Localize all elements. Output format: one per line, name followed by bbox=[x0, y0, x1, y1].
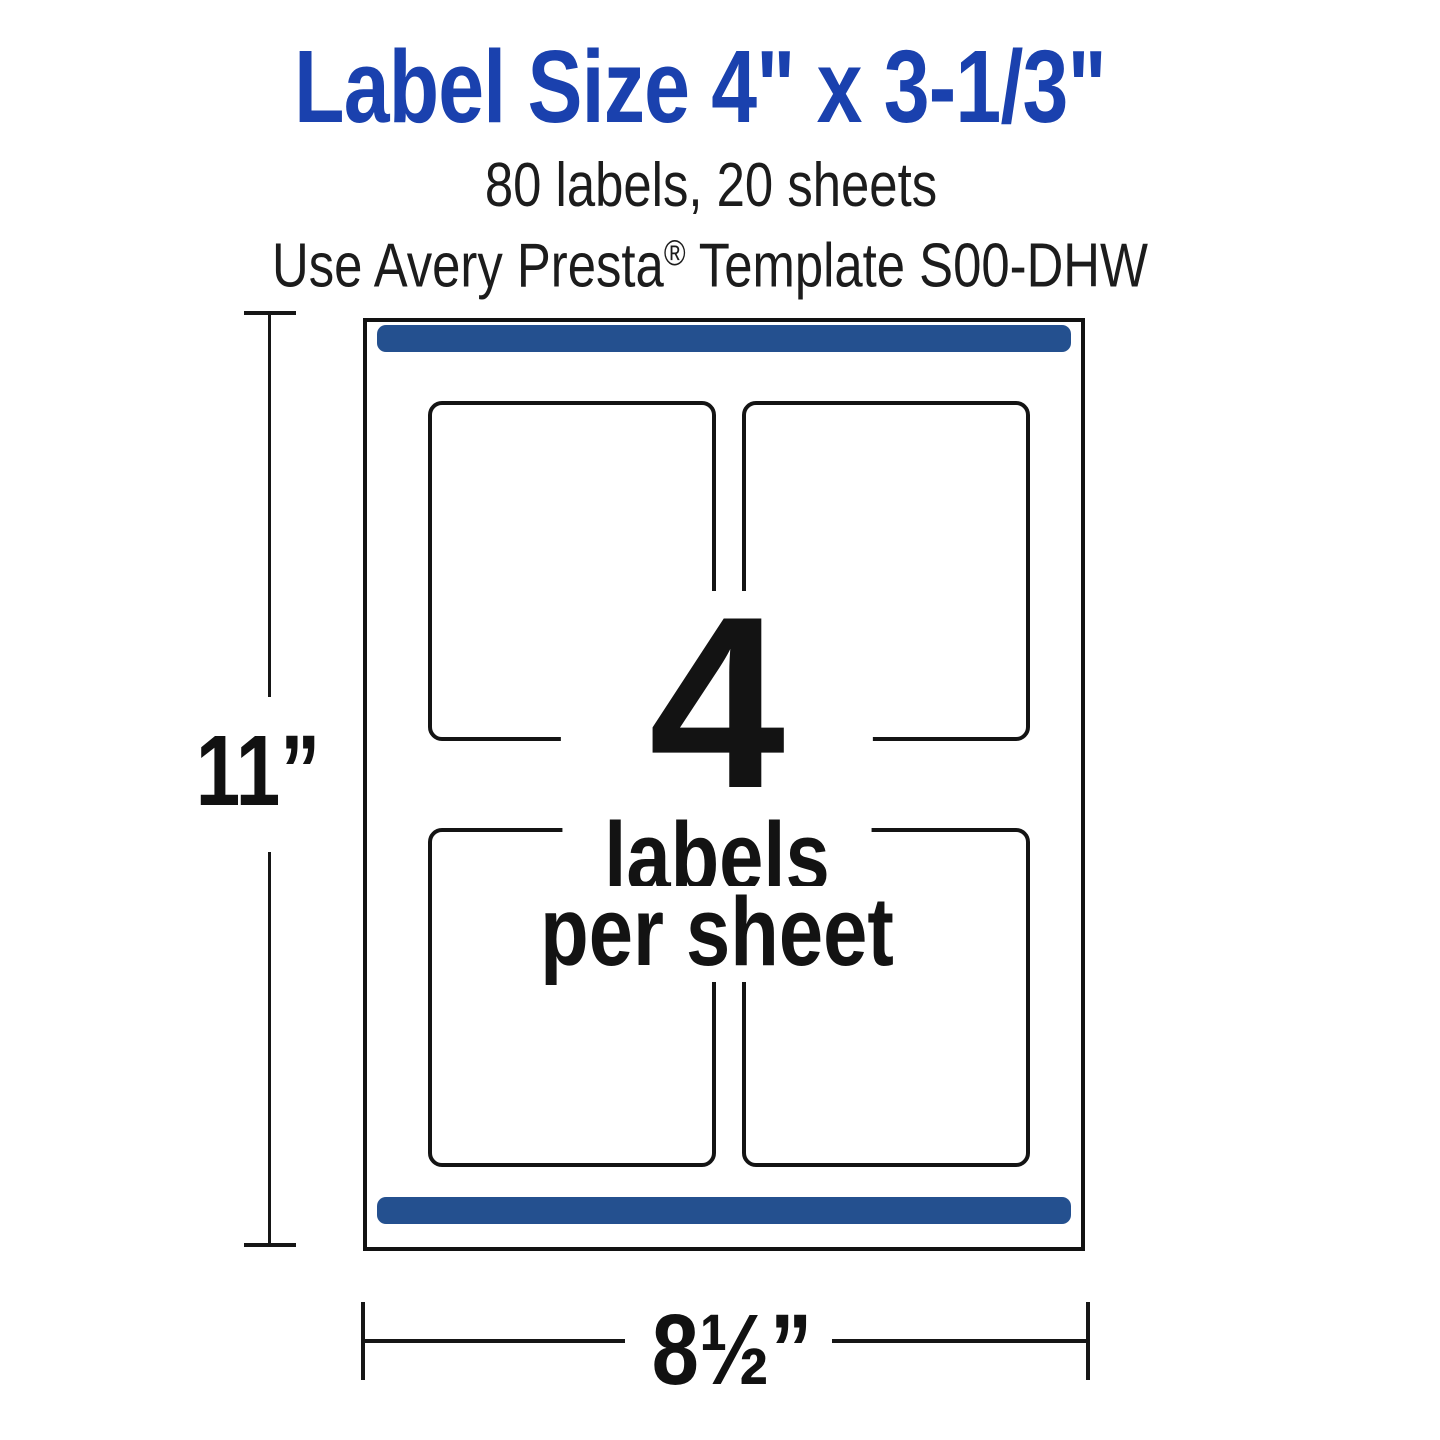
page-title: Label Size 4" x 3-1/3" bbox=[294, 29, 1106, 144]
width-dimension-line-right bbox=[832, 1339, 1090, 1343]
subtitle-template: Use Avery Presta® Template S00-DHW bbox=[272, 217, 1148, 302]
subtitle-template-prefix: Use Avery Presta bbox=[272, 232, 664, 301]
height-dimension-line-upper bbox=[268, 311, 271, 697]
registered-trademark-symbol: ® bbox=[664, 232, 686, 273]
height-dimension-line-lower bbox=[268, 852, 271, 1245]
height-dimension-label: 11” bbox=[196, 721, 321, 821]
height-dimension-bottom-cap bbox=[244, 1243, 296, 1247]
width-dimension-label: 8½” bbox=[652, 1300, 813, 1400]
product-diagram-page: Label Size 4" x 3-1/3" 80 labels, 20 she… bbox=[0, 0, 1440, 1440]
width-dimension-right-tick bbox=[1086, 1302, 1090, 1380]
sheet-top-blue-bar bbox=[377, 325, 1071, 352]
width-dimension-line-left bbox=[361, 1339, 625, 1343]
sheet-bottom-blue-bar bbox=[377, 1197, 1071, 1224]
labels-per-sheet-word2: per sheet bbox=[516, 886, 919, 982]
subtitle-counts: 80 labels, 20 sheets bbox=[485, 150, 937, 221]
labels-per-sheet-count: 4 bbox=[561, 591, 873, 801]
subtitle-template-suffix: Template S00-DHW bbox=[686, 232, 1148, 301]
